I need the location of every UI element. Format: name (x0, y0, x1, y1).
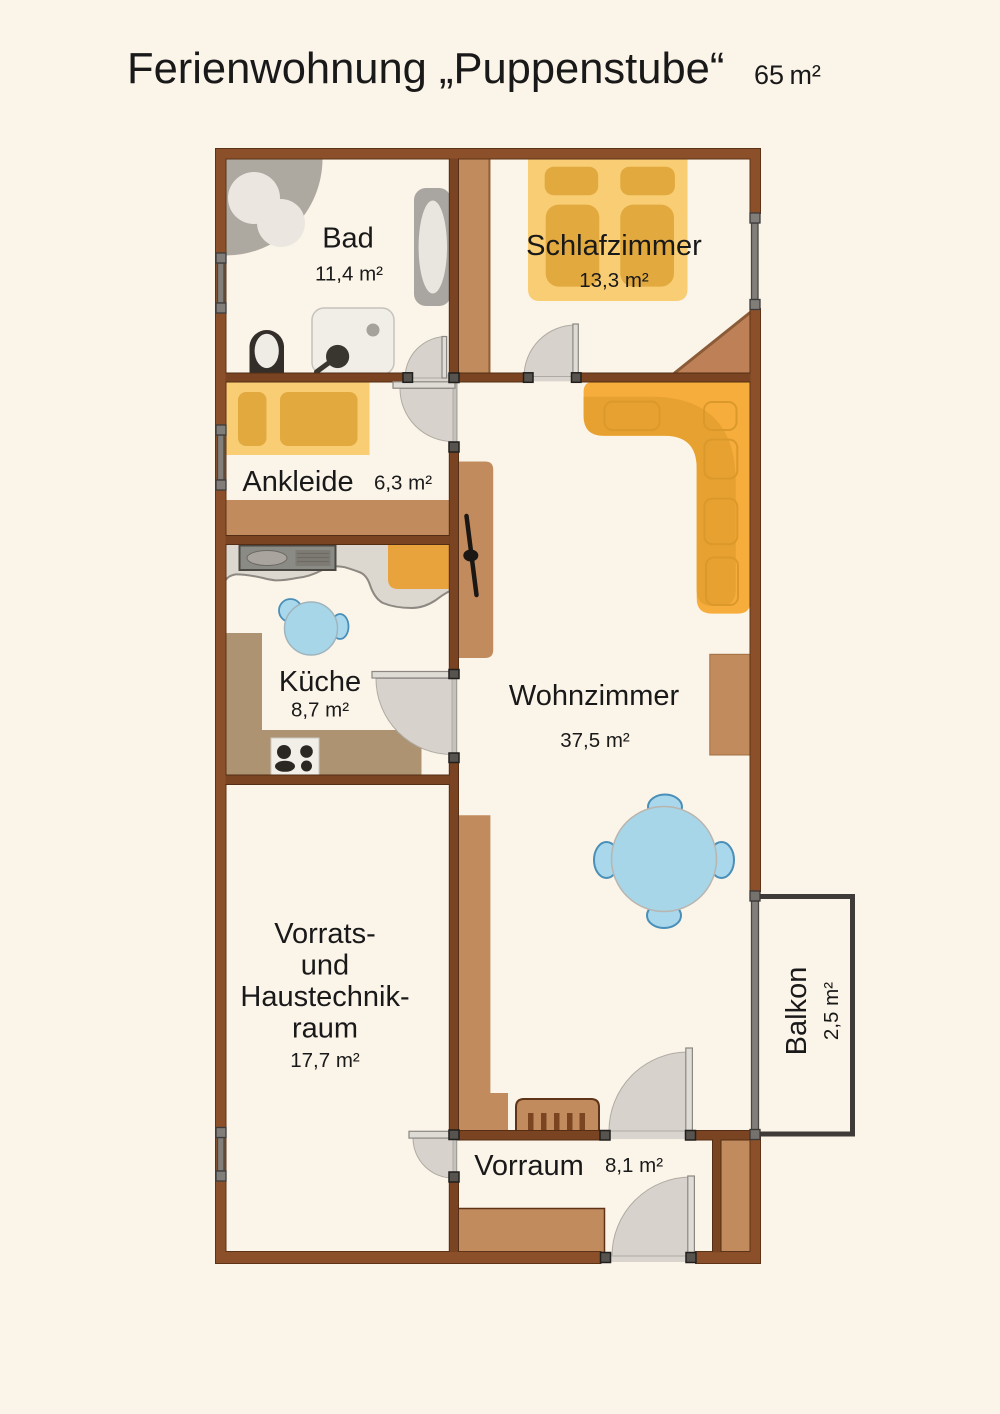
svg-text:2,5 m²: 2,5 m² (820, 982, 843, 1040)
svg-text:Küche: Küche (279, 666, 361, 698)
svg-text:11,4 m²: 11,4 m² (315, 263, 383, 286)
svg-text:Balkon: Balkon (781, 967, 813, 1056)
svg-text:8,1 m²: 8,1 m² (605, 1154, 663, 1177)
svg-text:Vorraum: Vorraum (474, 1150, 584, 1182)
svg-text:8,7 m²: 8,7 m² (291, 699, 349, 722)
svg-text:37,5 m²: 37,5 m² (560, 729, 630, 752)
svg-text:Wohnzimmer: Wohnzimmer (509, 680, 680, 712)
svg-text:65 m²: 65 m² (754, 60, 821, 90)
svg-text:Vorrats-: Vorrats- (274, 918, 376, 950)
svg-text:Schlafzimmer: Schlafzimmer (526, 230, 702, 262)
svg-text:Ankleide: Ankleide (242, 466, 353, 498)
svg-text:Bad: Bad (322, 223, 374, 255)
svg-text:13,3 m²: 13,3 m² (579, 269, 649, 292)
svg-text:und: und (301, 950, 349, 982)
svg-text:17,7 m²: 17,7 m² (290, 1049, 360, 1072)
svg-text:raum: raum (292, 1013, 358, 1045)
svg-text:Haustechnik-: Haustechnik- (240, 981, 409, 1013)
svg-text:Ferienwohnung „Puppenstube“: Ferienwohnung „Puppenstube“ (127, 45, 724, 93)
svg-text:6,3 m²: 6,3 m² (374, 472, 432, 495)
